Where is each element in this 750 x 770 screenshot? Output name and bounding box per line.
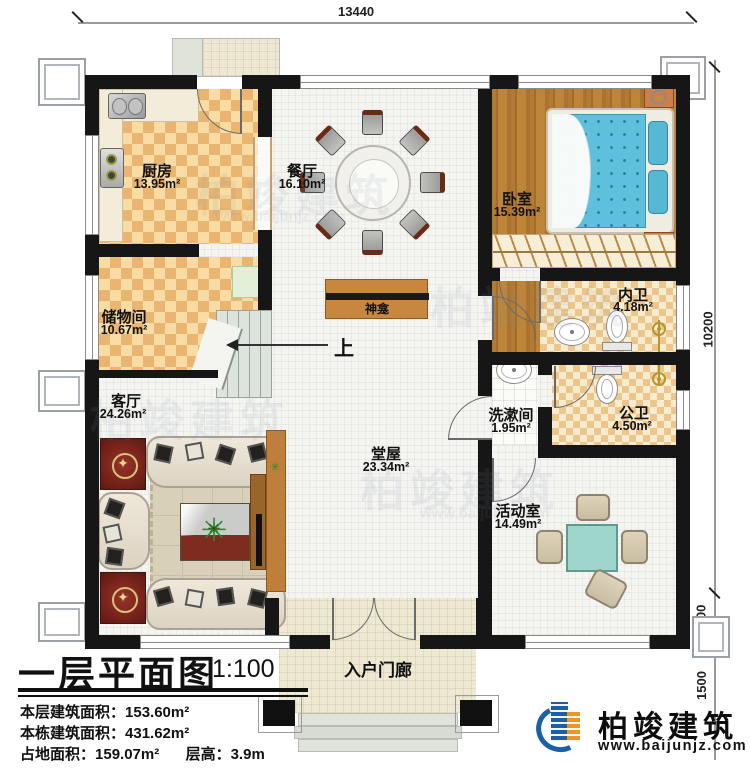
wall-left (85, 75, 99, 135)
window-public-bath (676, 390, 690, 430)
window-sill (692, 616, 730, 658)
sofa-pillow (185, 442, 205, 462)
activity-chair (576, 494, 610, 521)
wardrobe (492, 234, 676, 268)
bed-pillow (648, 170, 668, 214)
wall-storage-east (258, 244, 272, 310)
wall-bottom (650, 635, 690, 649)
stairs-up-label: 上 (334, 332, 354, 361)
stat-label: 本栋建筑面积： (20, 725, 125, 742)
wall-right (676, 430, 690, 649)
wall-bedroom-bath (540, 268, 676, 281)
sofa-pillow (216, 587, 235, 606)
logo-building-blue (551, 702, 568, 742)
room-area-dining: 16.10m² (279, 177, 326, 191)
stat-label: 占地面积： (20, 746, 95, 763)
sofa-pillow (102, 523, 122, 543)
wall-left (85, 235, 99, 275)
bed-pillow (648, 121, 668, 165)
nightstand-lamp (651, 90, 666, 105)
burner (106, 154, 117, 165)
wall-top (242, 75, 300, 89)
wall-left (85, 360, 99, 649)
stat-label: 本层建筑面积： (20, 704, 125, 721)
window-inner-bath (676, 285, 690, 350)
door-leaf-bedroom (492, 296, 494, 340)
logo-building-orange (567, 710, 580, 742)
title-underline-thin (18, 695, 308, 697)
dining-table (335, 145, 411, 221)
room-area-activity: 14.49m² (495, 517, 542, 531)
kitchen-sink (108, 93, 146, 119)
porch-post (460, 700, 492, 726)
room-area-hall: 23.34m² (363, 460, 410, 474)
sofa-pillow (185, 589, 205, 609)
wall-top (85, 75, 197, 89)
storage-cabinet (232, 266, 260, 298)
wall-right (676, 75, 690, 285)
room-area-bedroom: 15.39m² (494, 205, 541, 219)
back-porch (172, 38, 204, 77)
room-area-public-bath: 4.50m² (612, 419, 652, 433)
window-kitchen (85, 135, 99, 235)
wall-porch-right (476, 598, 490, 649)
sink-bowl (128, 98, 143, 115)
dim-top-value: 13440 (338, 4, 374, 19)
window-sill (38, 58, 86, 106)
door-leaf-entry (414, 598, 416, 640)
back-porch-steps (202, 38, 280, 77)
tv-screen (256, 514, 262, 566)
door-leaf-entry (332, 598, 334, 640)
wall-hall-bedroom (478, 89, 492, 296)
wall-kitchen-dining (258, 89, 272, 137)
stairs-arrow-head (226, 339, 238, 351)
dim-right-1500: 1500 (694, 671, 709, 700)
end-table (100, 438, 146, 490)
wall-storage-living (99, 370, 218, 378)
stat-value: 159.07m² (95, 746, 159, 763)
stat-value: 153.60m² (125, 704, 189, 721)
wall-right (676, 350, 690, 390)
shower-head (652, 372, 666, 386)
room-area-storage: 10.67m² (101, 323, 148, 337)
sofa-pillow (105, 547, 124, 566)
stat-label: 层高： (186, 746, 231, 763)
room-area-living: 24.26m² (100, 407, 147, 421)
activity-chair (621, 530, 648, 564)
floor-plan: 13440 10200 900 1500 (0, 0, 750, 770)
activity-chair (536, 530, 563, 564)
stat-value: 431.62m² (125, 725, 189, 742)
sofa-pillow (153, 443, 173, 463)
window-activity (525, 635, 650, 649)
inner-bath-toilet-bowl (606, 310, 628, 343)
stat-value: 3.9m (231, 746, 265, 763)
dining-chair (420, 172, 445, 193)
wall-innerbath-bottom (478, 352, 676, 365)
wall-bedroom-bath (492, 268, 500, 281)
opening-kitchen-dining (253, 137, 272, 230)
window-storage (85, 275, 99, 360)
wall-top (490, 75, 518, 89)
room-area-kitchen: 13.95m² (134, 177, 181, 191)
shower-head (652, 322, 666, 336)
wall-hall-bedroom (478, 340, 492, 352)
stat-floor-area: 本层建筑面积：153.60m² (20, 701, 189, 722)
room-area-inner-bath: 4.18m² (613, 300, 653, 314)
window-sill (38, 602, 86, 642)
plant-core: ✳ (205, 521, 223, 539)
porch-step (294, 726, 462, 739)
wall-washroom-publicbath (538, 365, 552, 375)
window-bedroom (518, 75, 652, 89)
inner-bath-sink (554, 318, 590, 346)
sink-bowl (112, 98, 127, 115)
porch-post (263, 700, 295, 726)
dim-right-total: 10200 (701, 311, 716, 347)
wall-activity-top (478, 445, 492, 458)
porch-step (298, 739, 458, 752)
activity-table (566, 524, 618, 572)
wall-bottom (290, 635, 330, 649)
stairs-arrow-line (236, 344, 328, 346)
stove (100, 148, 124, 188)
wall-bottom (420, 635, 525, 649)
wardrobe-rail (493, 251, 677, 253)
dining-table-inner (349, 159, 399, 209)
tv-board (266, 430, 286, 592)
plan-scale: 1:100 (212, 655, 275, 684)
wall-washroom-west (478, 352, 492, 396)
room-area-washroom: 1.95m² (491, 421, 531, 435)
door-leaf-back (240, 89, 242, 134)
door-leaf-inner-bath (539, 281, 541, 323)
stat-land-area: 占地面积：159.07m² 层高：3.9m (20, 743, 265, 764)
logo-website: www.baijunjz.com (598, 738, 747, 754)
dim-line-top (78, 22, 694, 24)
dining-chair (362, 230, 383, 255)
company-logo (536, 698, 590, 758)
door-leaf-public-bath (554, 366, 556, 408)
porch-step (298, 713, 458, 726)
shrine-label: 神龛 (365, 300, 389, 317)
door-leaf-activity (492, 458, 494, 502)
wall-activity-top (538, 445, 690, 458)
room-label-porch: 入户门廊 (344, 656, 412, 681)
door-leaf-washroom (448, 438, 492, 440)
wall-kitchen-storage (99, 244, 199, 257)
tv-plant: ✳ (268, 460, 282, 474)
burner (106, 170, 117, 181)
dining-chair (362, 110, 383, 135)
public-bath-toilet-bowl (596, 374, 618, 404)
title-underline (18, 688, 308, 692)
stat-building-area: 本栋建筑面积：431.62m² (20, 722, 189, 743)
shrine-band (326, 293, 429, 300)
window-dining (300, 75, 490, 89)
inner-bath-toilet-tank (602, 342, 632, 351)
end-table (100, 572, 146, 624)
window-sill (38, 370, 86, 412)
